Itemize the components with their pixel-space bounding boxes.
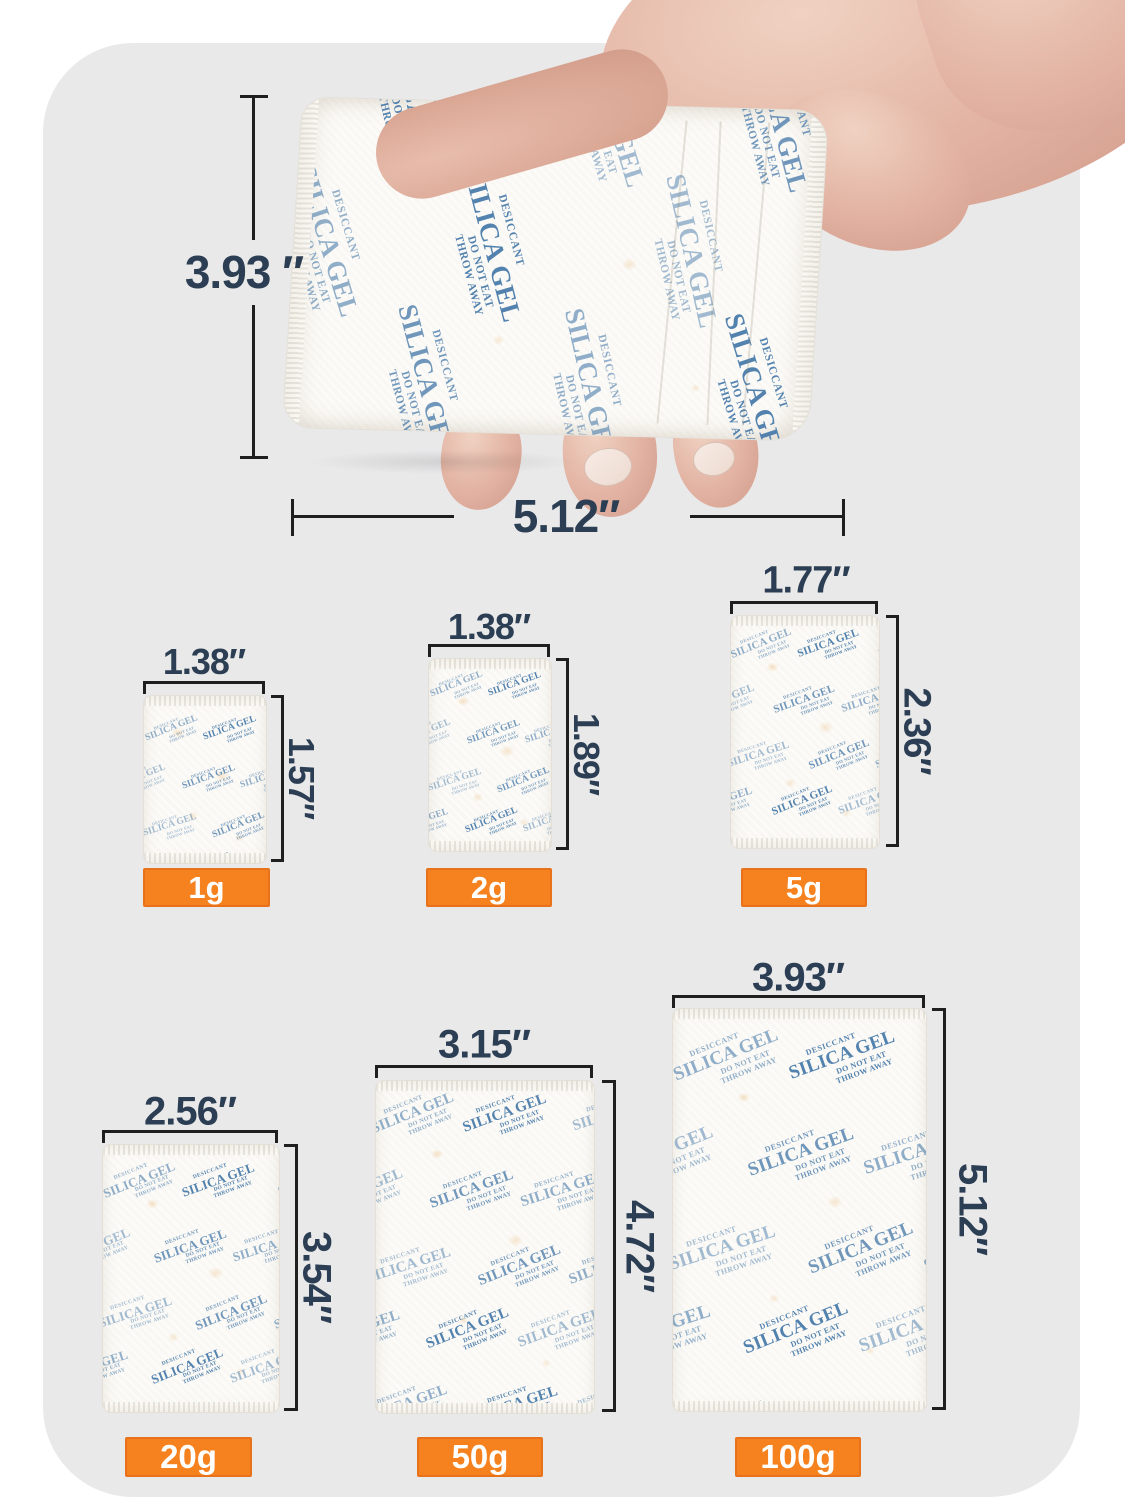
height-dimension-label: 1.89″ [565,713,607,795]
packet-print-block: DESICCANTSILICA GELDO NOT EATTHROW AWAY [226,1341,280,1396]
width-dimension-bracket [428,644,550,657]
packet-print-block: DESICCANTSILICA GELDO NOT EATTHROW AWAY [784,1020,904,1100]
packet-print-block: DESICCANTSILICA GELDO NOT EATTHROW AWAY [743,1116,863,1196]
height-dimension-label: 4.72″ [617,1200,662,1292]
packet-print-block: DESICCANTSILICA GELDO NOT EATTHROW AWAY [229,1222,280,1275]
packet-print-block: DESICCANTSILICA GELDO NOT EATTHROW AWAY [428,666,488,708]
hero-height-dimension-label: 3.93 ″ [185,245,303,299]
packet-print-block: DESICCANTSILICA GELDO NOT EATTHROW AWAY [672,1115,723,1198]
packet-print-pattern: DESICCANTSILICA GELDO NOT EATTHROW AWAYD… [143,695,267,864]
packet-print-block: DESICCANTSILICA GELDO NOT EATTHROW AWAY [838,679,880,724]
width-dimension-label: 2.56″ [144,1090,236,1135]
height-dimension-label: 1.57″ [280,737,322,819]
packet-print-block: DESICCANTSILICA GELDO NOT EATTHROW AWAY [854,1292,927,1372]
packet-print-block: DESICCANTSILICA GELDO NOT EATTHROW AWAY [513,1300,595,1363]
packet-print-block: DESICCANTSILICA GELDO NOT EATTHROW AWAY [738,1291,858,1374]
packet-print-block: DESICCANTSILICA GELDO NOT EATTHROW AWAY [924,1021,927,1098]
packet-print-block: DESICCANTSILICA GELDO NOT EATTHROW AWAY [422,1299,517,1365]
packet-print-block: DESICCANTSILICA GELDO NOT EATTHROW AWAY [143,759,170,801]
silica-packet-5g: DESICCANTSILICA GELDO NOT EATTHROW AWAYD… [730,615,880,849]
packet-print-block: DESICCANTSILICA GELDO NOT EATTHROW AWAY [150,1221,232,1276]
print-line-desiccant: DESICCANT [872,625,880,650]
height-dimension-line-top [252,95,255,240]
packet-print-block: DESICCANTSILICA GELDO NOT EATTHROW AWAY [102,1154,181,1211]
packet-print-block: DESICCANTSILICA GELDO NOT EATTHROW AWAY [102,1288,177,1341]
silica-packet-1g: DESICCANTSILICA GELDO NOT EATTHROW AWAYD… [143,695,267,864]
packet-print-block: DESICCANTSILICA GELDO NOT EATTHROW AWAY [919,1213,927,1293]
packet-print-pattern: DESICCANTSILICA GELDO NOT EATTHROW AWAYD… [730,615,880,849]
packet-print-block: DESICCANTSILICA GELDO NOT EATTHROW AWAY [238,761,267,800]
height-dimension-label: 2.36″ [895,687,938,774]
packet-print-block: DESICCANTSILICA GELDO NOT EATTHROW AWAY [473,1236,568,1302]
silica-packet-2g: DESICCANTSILICA GELDO NOT EATTHROW AWAYD… [428,658,552,852]
packet-print-block: DESICCANTSILICA GELDO NOT EATTHROW AWAY [730,781,757,826]
packet-print-pattern: DESICCANTSILICA GELDO NOT EATTHROW AWAYD… [672,1008,927,1412]
width-dimension-label: 3.93″ [752,956,844,1001]
weight-badge-2g: 2g [426,868,552,907]
silica-gel-size-infographic: DESICCANTSILICA GELDO NOT EATTHROW AWAYD… [0,0,1125,1500]
width-dimension-line-left [294,515,454,518]
packet-print-block: DESICCANTSILICA GELDO NOT EATTHROW AWAY [795,622,864,669]
width-dimension-label: 1.77″ [762,560,849,603]
packet-crimp-bottom [731,838,879,848]
packet-print-block: DESICCANTSILICA GELDO NOT EATTHROW AWAY [463,803,523,845]
packet-print-pattern: DESICCANTSILICA GELDO NOT EATTHROW AWAYD… [102,1144,280,1413]
packet-print-block: DESICCANTSILICA GELDO NOT EATTHROW AWAY [102,1220,136,1277]
width-dimension-tick-right [842,499,845,536]
packet-crimp-top [429,659,551,669]
packet-print-block: DESICCANTSILICA GELDO NOT EATTHROW AWAY [637,168,734,337]
height-dimension-tick-bottom [240,456,268,459]
packet-print-block: DESICCANTSILICA GELDO NOT EATTHROW AWAY [859,1118,927,1195]
height-dimension-bracket [932,1008,946,1410]
packet-print-block: DESICCANTSILICA GELDO NOT EATTHROW AWAY [568,1086,595,1147]
packet-shadow [310,450,580,474]
packet-crimp-top [376,1081,594,1091]
packet-print-block: DESICCANTSILICA GELDO NOT EATTHROW AWAY [178,1155,260,1210]
packet-print-pattern: DESICCANTSILICA GELDO NOT EATTHROW AWAYD… [375,1080,595,1414]
packet-print-block: DESICCANTSILICA GELDO NOT EATTHROW AWAY [521,803,552,843]
packet-print-block: DESICCANTSILICA GELDO NOT EATTHROW AWAY [370,298,472,442]
packet-print-block: DESICCANTSILICA GELDO NOT EATTHROW AWAY [201,712,261,752]
packet-print-block: DESICCANTSILICA GELDO NOT EATTHROW AWAY [147,1340,229,1397]
width-dimension-label: 1.38″ [448,606,530,648]
packet-crimp-top [673,1009,926,1019]
packet-print-block: DESICCANTSILICA GELDO NOT EATTHROW AWAY [537,302,634,441]
print-line-desiccant: DESICCANT [269,1157,280,1186]
packet-crimp-bottom [429,841,551,851]
weight-badge-100g: 100g [735,1437,861,1477]
packet-print-block: DESICCANTSILICA GELDO NOT EATTHROW AWAY [672,1018,788,1101]
packet-print-block: DESICCANTSILICA GELDO NOT EATTHROW AWAY [143,711,203,753]
print-line-desiccant: DESICCANT [917,1023,927,1065]
packet-print-block: DESICCANTSILICA GELDO NOT EATTHROW AWAY [803,1211,923,1294]
height-dimension-label: 3.54″ [294,1231,339,1323]
packet-print-block: DESICCANTSILICA GELDO NOT EATTHROW AWAY [876,623,880,668]
packet-crimp-top [731,616,879,626]
hero-width-dimension-label: 5.12″ [513,489,620,543]
packet-print-block: DESICCANTSILICA GELDO NOT EATTHROW AWAY [771,678,840,725]
packet-print-block: DESICCANTSILICA GELDO NOT EATTHROW AWAY [375,1084,461,1150]
packet-print-block: DESICCANTSILICA GELDO NOT EATTHROW AWAY [768,779,837,827]
packet-print-block: DESICCANTSILICA GELDO NOT EATTHROW AWAY [375,1239,457,1300]
height-dimension-label: 5.12″ [950,1163,995,1255]
packet-crimp-bottom [673,1401,926,1411]
packet-print-block: DESICCANTSILICA GELDO NOT EATTHROW AWAY [375,1160,410,1226]
packet-print-pattern: DESICCANTSILICA GELDO NOT EATTHROW AWAYD… [428,658,552,852]
width-dimension-bracket [102,1130,278,1143]
packet-crimp-bottom [144,853,266,863]
silica-packet-20g: DESICCANTSILICA GELDO NOT EATTHROW AWAYD… [102,1144,280,1413]
packet-print-block: DESICCANTSILICA GELDO NOT EATTHROW AWAY [180,760,240,800]
weight-badge-1g: 1g [143,868,270,907]
packet-print-block: DESICCANTSILICA GELDO NOT EATTHROW AWAY [835,780,880,827]
packet-print-block: DESICCANTSILICA GELDO NOT EATTHROW AWAY [274,1156,280,1209]
packet-print-block: DESICCANTSILICA GELDO NOT EATTHROW AWAY [565,1237,595,1300]
packet-print-block: DESICCANTSILICA GELDO NOT EATTHROW AWAY [730,735,794,780]
weight-badge-5g: 5g [741,868,867,907]
packet-crimp-bottom [376,1403,594,1413]
packet-print-block: DESICCANTSILICA GELDO NOT EATTHROW AWAY [428,715,455,757]
packet-print-block: DESICCANTSILICA GELDO NOT EATTHROW AWAY [428,764,485,803]
packet-print-block: DESICCANTSILICA GELDO NOT EATTHROW AWAY [730,677,759,725]
print-line-silica-gel: SILICA GEL [926,1029,927,1082]
width-dimension-line-right [690,515,842,518]
packet-print-block: DESICCANTSILICA GELDO NOT EATTHROW AWAY [465,715,525,755]
width-dimension-bracket [730,601,878,614]
packet-print-block: DESICCANTSILICA GELDO NOT EATTHROW AWAY [210,807,267,849]
packet-print-block: DESICCANTSILICA GELDO NOT EATTHROW AWAY [375,1301,406,1362]
packet-print-block: DESICCANTSILICA GELDO NOT EATTHROW AWAY [143,809,200,848]
packet-print-block: DESICCANTSILICA GELDO NOT EATTHROW AWAY [672,1294,718,1371]
packet-print-block: DESICCANTSILICA GELDO NOT EATTHROW AWAY [426,1161,521,1224]
packet-print-block: DESICCANTSILICA GELDO NOT EATTHROW AWAY [672,1214,783,1291]
width-dimension-bracket [672,995,925,1008]
packet-crimp-bottom [103,1402,279,1412]
silica-packet-100g: DESICCANTSILICA GELDO NOT EATTHROW AWAYD… [672,1008,927,1412]
packet-print-block: DESICCANTSILICA GELDO NOT EATTHROW AWAY [523,716,552,755]
weight-badge-50g: 50g [417,1437,543,1477]
packet-print-block: DESICCANTSILICA GELDO NOT EATTHROW AWAY [428,804,453,843]
packet-print-block: DESICCANTSILICA GELDO NOT EATTHROW AWAY [730,622,797,670]
packet-print-block: DESICCANTSILICA GELDO NOT EATTHROW AWAY [486,667,546,707]
width-dimension-bracket [143,681,265,694]
width-dimension-label: 1.38″ [163,641,245,683]
packet-print-block: DESICCANTSILICA GELDO NOT EATTHROW AWAY [873,734,880,781]
packet-print-block: DESICCANTSILICA GELDO NOT EATTHROW AWAY [191,1286,273,1343]
packet-crimp-top [144,696,266,706]
packet-print-block: DESICCANTSILICA GELDO NOT EATTHROW AWAY [458,1085,553,1148]
height-dimension-bracket [602,1080,616,1412]
height-dimension-line-bottom [252,305,255,456]
print-line-do-not-eat: DO NOT EAT [736,848,798,849]
packet-print-block: DESICCANTSILICA GELDO NOT EATTHROW AWAY [806,733,875,781]
width-dimension-bracket [375,1065,593,1078]
weight-badge-20g: 20g [125,1437,252,1477]
packet-print-block: DESICCANTSILICA GELDO NOT EATTHROW AWAY [102,1342,133,1395]
packet-print-block: DESICCANTSILICA GELDO NOT EATTHROW AWAY [270,1287,280,1342]
packet-print-block: DESICCANTSILICA GELDO NOT EATTHROW AWAY [495,763,552,805]
silica-packet-50g: DESICCANTSILICA GELDO NOT EATTHROW AWAYD… [375,1080,595,1414]
packet-print-block: DESICCANTSILICA GELDO NOT EATTHROW AWAY [517,1163,595,1224]
packet-crimp-top [103,1145,279,1155]
width-dimension-label: 3.15″ [438,1023,530,1068]
